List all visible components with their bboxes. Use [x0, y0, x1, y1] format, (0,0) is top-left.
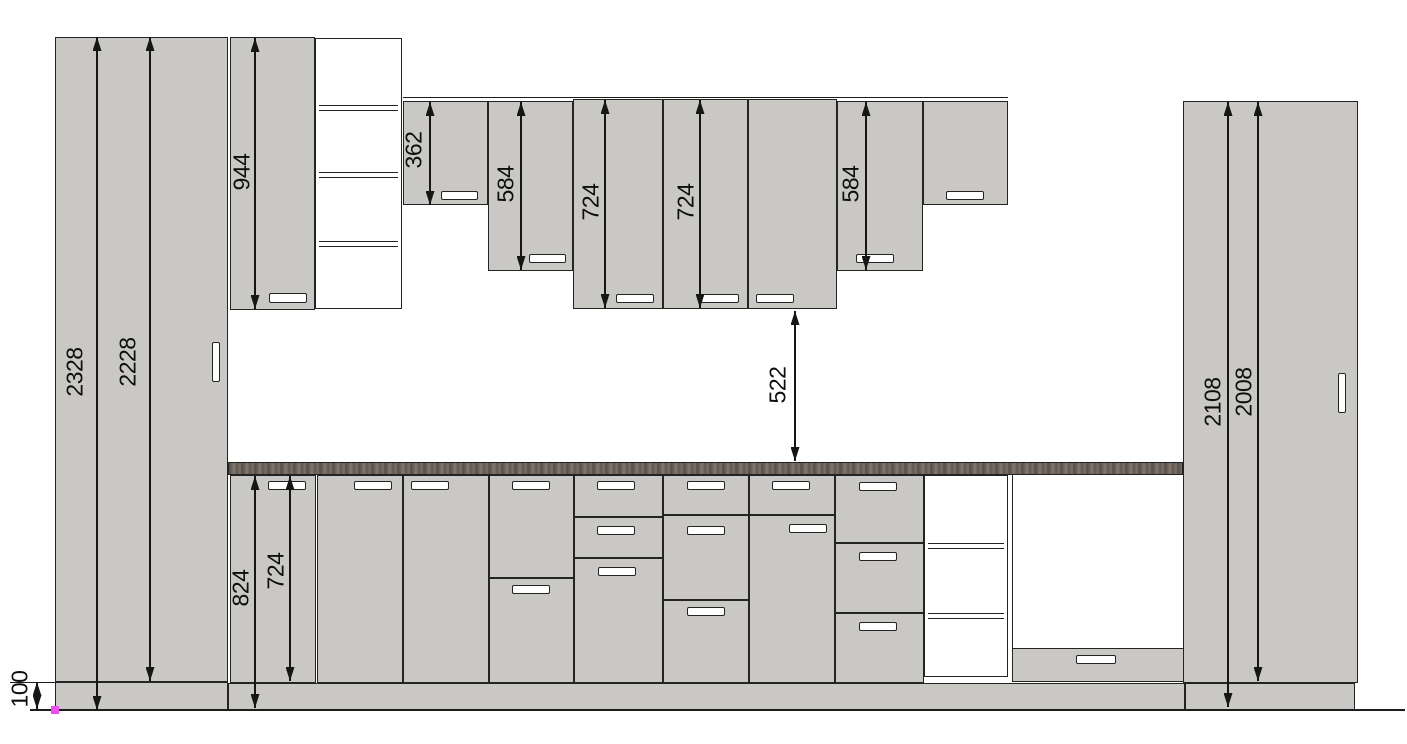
dim-line-724: [289, 476, 290, 681]
wall-724-right-handle: [701, 294, 739, 303]
appliance-niche-drawer: [1012, 648, 1184, 682]
tall-cabinet-right-plinth: [1185, 683, 1355, 710]
dim-arrowhead-down: [791, 447, 800, 461]
wall-cabinet-right-end: [923, 101, 1008, 205]
base-7-door: [749, 515, 835, 683]
origin-marker: [51, 706, 59, 714]
tall-right-door-handle: [1338, 373, 1346, 413]
dim-line-2008: [1257, 102, 1258, 681]
kitchen-cabinet-elevation-drawing: 2328222894436258472472458452282472410021…: [0, 0, 1407, 744]
base-shelf-1: [928, 543, 1004, 549]
wall-362-handle: [441, 191, 478, 200]
base-5-drawer-2: [574, 517, 663, 558]
base-6-drawer-1-handle: [687, 481, 725, 490]
dim-label-2328-0: 2328: [64, 347, 87, 396]
tall-cabinet-left-plinth: [55, 682, 228, 710]
dim-line-522: [794, 311, 795, 461]
floor-line: [30, 709, 1405, 711]
base-5-drawer-2-handle: [597, 526, 635, 535]
dim-arrowhead-down: [33, 695, 42, 709]
base-open-shelf-unit: [924, 475, 1008, 677]
dim-label-522-8: 522: [767, 367, 790, 404]
base-6-drawer-2-handle: [687, 526, 725, 535]
upper-shelf-3: [319, 241, 398, 247]
wall-right-end-handle: [946, 191, 984, 200]
base-4-lower-handle: [512, 585, 550, 594]
dim-line-824: [254, 476, 255, 708]
wall-584-right-handle: [856, 254, 894, 263]
upper-shelf-2: [319, 172, 398, 178]
dim-arrowhead-up: [33, 682, 42, 696]
dim-label-2108-12: 2108: [1202, 377, 1225, 426]
wall-584-left-handle: [529, 254, 566, 263]
dim-line-584: [865, 102, 866, 270]
base-5-drawer-1-handle: [597, 481, 635, 490]
dim-label-2228-1: 2228: [117, 337, 140, 386]
base-5-door-handle: [598, 567, 636, 576]
dim-label-584-4: 584: [495, 166, 518, 203]
base-8-drawer-3-handle: [859, 622, 897, 631]
base-7-door-handle: [789, 524, 827, 533]
wall-944-handle: [269, 293, 307, 303]
dim-label-2008-13: 2008: [1233, 367, 1256, 416]
dim-label-362-3: 362: [403, 132, 426, 169]
base-4-upper-handle: [512, 481, 550, 490]
dim-label-724-6: 724: [675, 184, 698, 221]
dim-line-2108: [1227, 102, 1228, 707]
dim-line-724: [699, 100, 700, 308]
wall-wide-handle: [756, 294, 794, 303]
base-door-3: [403, 475, 489, 683]
dim-line-584: [520, 102, 521, 270]
tall-left-door-handle: [212, 342, 220, 382]
base-plinth: [228, 683, 1185, 710]
dim-label-584-7: 584: [840, 166, 863, 203]
base-8-drawer-2-handle: [859, 552, 897, 561]
dim-label-100-11: 100: [9, 671, 32, 708]
niche-drawer-handle: [1076, 655, 1116, 664]
dim-line-724: [604, 100, 605, 308]
countertop: [228, 462, 1183, 475]
base-shelf-2: [928, 613, 1004, 619]
base-4-upper-door: [489, 475, 574, 578]
base-8-drawer-1-handle: [859, 482, 897, 491]
base-7-drawer-handle: [772, 481, 810, 490]
base-5-door: [574, 558, 663, 683]
dim-line-362: [429, 102, 430, 205]
upper-row-extension-line: [403, 97, 1008, 98]
upper-shelf-1: [319, 105, 398, 111]
dim-label-724-5: 724: [580, 184, 603, 221]
wall-724-left-handle: [616, 294, 654, 303]
dim-line-2328: [96, 37, 97, 710]
wall-cabinet-wide: [748, 99, 837, 309]
base-6-drawer-3-handle: [687, 607, 725, 616]
dim-label-824-9: 824: [230, 570, 253, 607]
dim-label-944-2: 944: [231, 154, 254, 191]
dim-arrowhead-up: [791, 311, 800, 325]
dim-line-2228: [149, 37, 150, 681]
dim-label-724-10: 724: [265, 553, 288, 590]
base-door-2: [317, 475, 403, 683]
base-door-3-handle: [411, 481, 449, 490]
dim-line-944: [254, 38, 255, 309]
base-door-2-handle: [354, 481, 392, 490]
